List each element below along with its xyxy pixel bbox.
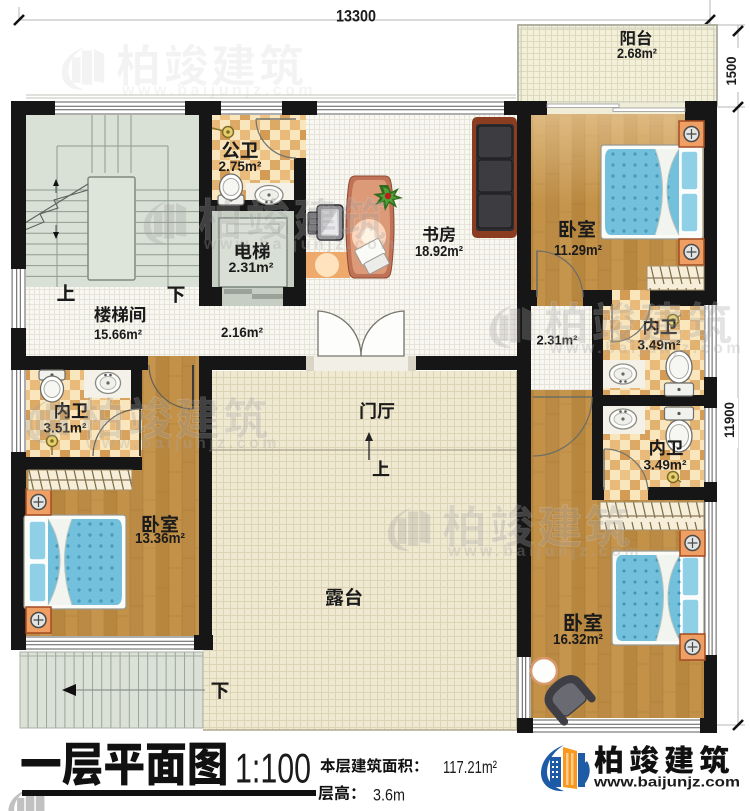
svg-text:15.66m²: 15.66m²: [94, 326, 142, 342]
svg-text:www.baijunjz.com: www.baijunjz.com: [121, 82, 316, 99]
svg-text:2.75m²: 2.75m²: [219, 158, 262, 174]
svg-text:www.baijunjz.com: www.baijunjz.com: [85, 435, 280, 452]
svg-text:11.29m²: 11.29m²: [554, 243, 602, 259]
svg-text:1:100: 1:100: [235, 745, 311, 792]
svg-text:2.68m²: 2.68m²: [617, 46, 657, 61]
svg-text:13.36m²: 13.36m²: [135, 531, 185, 547]
svg-text:www.baijunjz.com: www.baijunjz.com: [203, 236, 398, 253]
svg-text:www.baijunjz.com: www.baijunjz.com: [593, 775, 740, 790]
svg-text:13300: 13300: [336, 7, 376, 26]
svg-text:2.31m²: 2.31m²: [229, 259, 274, 275]
svg-text:3.49m²: 3.49m²: [644, 458, 687, 473]
svg-text:18.92m²: 18.92m²: [415, 244, 463, 260]
svg-text:1500: 1500: [724, 57, 739, 86]
svg-text:16.32m²: 16.32m²: [553, 632, 603, 648]
svg-text:3.6m: 3.6m: [373, 786, 405, 805]
svg-text:www.baijunjz.com: www.baijunjz.com: [447, 543, 642, 560]
svg-text:www.baijunjz.com: www.baijunjz.com: [549, 340, 744, 357]
svg-text:2.16m²: 2.16m²: [221, 324, 263, 340]
svg-text:117.21m²: 117.21m²: [443, 757, 497, 777]
svg-text:11900: 11900: [722, 402, 737, 438]
